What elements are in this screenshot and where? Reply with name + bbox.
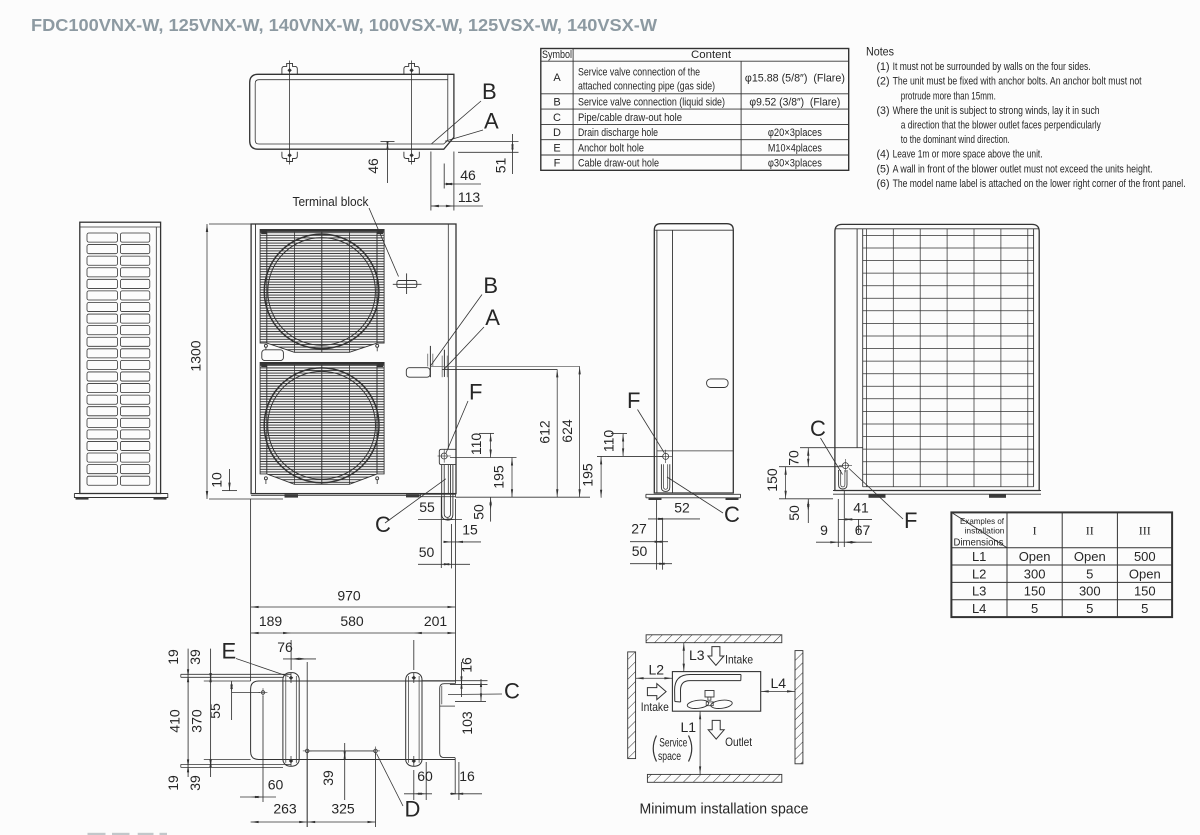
svg-text:Notes: Notes (866, 47, 894, 59)
svg-text:16: 16 (459, 768, 475, 784)
svg-text:It must not be surrounded by w: It must not be surrounded by walls on th… (893, 61, 1091, 73)
svg-text:46: 46 (365, 158, 381, 174)
svg-text:D: D (405, 797, 421, 822)
svg-text:(2): (2) (877, 76, 890, 88)
svg-text:55: 55 (419, 499, 435, 515)
svg-text:201: 201 (424, 613, 448, 629)
svg-text:Open: Open (1074, 549, 1106, 564)
svg-text:195: 195 (580, 463, 596, 487)
svg-text:B: B (483, 273, 498, 298)
svg-text:103: 103 (459, 711, 475, 735)
svg-text:50: 50 (471, 504, 487, 520)
svg-text:C: C (810, 416, 826, 441)
svg-text:A wall in front of the blower: A wall in front of the blower outlet mus… (893, 163, 1153, 175)
svg-text:L1: L1 (972, 549, 986, 564)
svg-text:B: B (553, 97, 560, 109)
svg-text:C: C (504, 679, 520, 704)
svg-text:F: F (469, 380, 482, 405)
svg-text:F: F (904, 508, 917, 533)
svg-text:263: 263 (273, 801, 297, 817)
svg-text:15: 15 (462, 522, 478, 538)
svg-text:Content: Content (691, 49, 731, 61)
svg-text:50: 50 (632, 543, 648, 559)
svg-text:Service valve connection (liqu: Service valve connection (liquid side) (578, 97, 725, 109)
svg-text:E: E (553, 142, 560, 154)
svg-text:110: 110 (468, 433, 484, 456)
svg-text:Open: Open (1129, 566, 1161, 581)
svg-text:51: 51 (493, 158, 509, 174)
svg-text:L3: L3 (972, 584, 986, 599)
svg-text:370: 370 (189, 709, 205, 733)
svg-text:46: 46 (460, 167, 476, 183)
svg-text:150: 150 (764, 468, 780, 492)
svg-text:110: 110 (601, 430, 617, 453)
svg-text:(4): (4) (877, 149, 890, 161)
svg-text:C: C (375, 512, 391, 537)
svg-text:L3: L3 (689, 647, 705, 663)
svg-text:5: 5 (1086, 566, 1093, 581)
svg-text:970: 970 (337, 588, 361, 604)
svg-text:5: 5 (1086, 601, 1093, 616)
svg-text:(1): (1) (877, 61, 890, 73)
svg-text:III: III (1139, 524, 1151, 538)
svg-text:A: A (553, 72, 561, 84)
svg-text:D: D (553, 127, 561, 139)
svg-text:(6): (6) (877, 178, 890, 190)
svg-text:φ20×3places: φ20×3places (768, 127, 822, 139)
svg-text:C: C (553, 112, 561, 124)
svg-text:16: 16 (459, 657, 475, 673)
svg-text:60: 60 (268, 777, 284, 793)
svg-text:F: F (554, 158, 561, 170)
svg-text:19: 19 (165, 649, 181, 665)
svg-text:II: II (1086, 524, 1094, 538)
svg-text:39: 39 (187, 775, 203, 791)
svg-text:I: I (1033, 524, 1037, 538)
svg-text:Service: Service (659, 736, 687, 750)
svg-text:Examples of: Examples of (960, 516, 1005, 526)
svg-text:27: 27 (631, 521, 647, 537)
svg-text:installation: installation (965, 526, 1005, 536)
svg-text:19: 19 (165, 775, 181, 791)
svg-text:Outlet: Outlet (725, 735, 753, 749)
svg-text:9: 9 (820, 522, 828, 538)
svg-text:10: 10 (209, 472, 225, 488)
svg-text:Pipe/cable draw-out hole: Pipe/cable draw-out hole (578, 112, 682, 124)
svg-text:500: 500 (1134, 549, 1156, 564)
svg-text:70: 70 (786, 450, 802, 466)
svg-text:Where the unit is subject to s: Where the unit is subject to strong wind… (893, 105, 1100, 117)
svg-text:Intake: Intake (725, 653, 753, 667)
svg-text:Minimum installation space: Minimum installation space (640, 801, 809, 818)
svg-text:300: 300 (1079, 584, 1101, 599)
svg-text:300: 300 (1024, 566, 1046, 581)
svg-text:φ30×3places: φ30×3places (768, 158, 822, 170)
svg-text:55: 55 (207, 703, 223, 719)
svg-text:(3): (3) (877, 105, 890, 117)
svg-text:624: 624 (559, 419, 575, 443)
svg-text:580: 580 (340, 613, 364, 629)
svg-text:M10×4places: M10×4places (768, 142, 822, 154)
svg-text:5: 5 (1031, 601, 1038, 616)
svg-text:410: 410 (167, 709, 183, 733)
svg-text:Dimensions: Dimensions (954, 537, 1004, 549)
svg-text:Intake: Intake (641, 700, 669, 714)
svg-text:Service valve connection of th: Service valve connection of the (578, 67, 700, 79)
svg-text:150: 150 (1134, 584, 1156, 599)
svg-text:Leave 1m or more space above t: Leave 1m or more space above the unit. (893, 149, 1043, 161)
svg-text:50: 50 (786, 505, 802, 521)
svg-text:Open: Open (1019, 549, 1051, 564)
svg-text:52: 52 (674, 500, 690, 516)
svg-text:76: 76 (277, 639, 293, 655)
svg-text:60: 60 (417, 768, 433, 784)
svg-text:φ15.88 (5/8″) (Flare): φ15.88 (5/8″) (Flare) (745, 73, 845, 85)
svg-text:41: 41 (853, 500, 869, 516)
svg-text:195: 195 (491, 465, 507, 489)
svg-text:Drain discharge hole: Drain discharge hole (578, 127, 658, 139)
svg-text:C: C (724, 502, 740, 527)
svg-text:attached connecting pipe (gas: attached connecting pipe (gas side) (578, 81, 715, 93)
svg-text:39: 39 (320, 770, 336, 786)
svg-text:113: 113 (458, 189, 481, 205)
svg-text:1300: 1300 (188, 340, 204, 371)
svg-text:(5): (5) (877, 163, 890, 175)
svg-text:612: 612 (537, 420, 553, 444)
svg-text:to the dominant wind direction: to the dominant wind direction. (901, 134, 1010, 146)
svg-text:50: 50 (419, 544, 435, 560)
svg-text:FDC100VNX-W, 125VNX-W, 140VNX-: FDC100VNX-W, 125VNX-W, 140VNX-W, 100VSX-… (31, 15, 658, 35)
svg-text:L4: L4 (972, 601, 986, 616)
svg-text:B: B (482, 79, 497, 104)
svg-text:The unit must be fixed with an: The unit must be fixed with anchor bolts… (893, 76, 1142, 88)
svg-text:space: space (658, 749, 681, 763)
svg-text:325: 325 (331, 801, 355, 817)
svg-text:5: 5 (1141, 601, 1148, 616)
svg-text:L1: L1 (681, 719, 697, 735)
svg-text:150: 150 (1024, 584, 1046, 599)
svg-text:The model name label is attach: The model name label is attached on the … (893, 178, 1186, 190)
svg-text:A: A (484, 109, 499, 134)
svg-text:189: 189 (259, 613, 283, 629)
svg-text:L4: L4 (771, 675, 787, 691)
svg-text:E: E (222, 639, 237, 664)
svg-text:φ9.52 (3/8″) (Flare): φ9.52 (3/8″) (Flare) (749, 97, 840, 109)
svg-text:Anchor bolt hole: Anchor bolt hole (578, 142, 644, 154)
svg-text:Symbol: Symbol (542, 49, 572, 61)
svg-text:F: F (627, 388, 640, 413)
svg-text:protrude more than 15mm.: protrude more than 15mm. (901, 90, 996, 102)
svg-text:39: 39 (187, 649, 203, 665)
svg-text:Terminal block: Terminal block (293, 195, 370, 209)
svg-text:L2: L2 (649, 662, 665, 678)
svg-text:a direction that the blower ou: a direction that the blower outlet faces… (901, 120, 1101, 132)
svg-text:Cable draw-out hole: Cable draw-out hole (578, 158, 659, 170)
svg-text:L2: L2 (972, 566, 986, 581)
svg-text:67: 67 (855, 522, 871, 538)
svg-text:A: A (485, 305, 500, 330)
